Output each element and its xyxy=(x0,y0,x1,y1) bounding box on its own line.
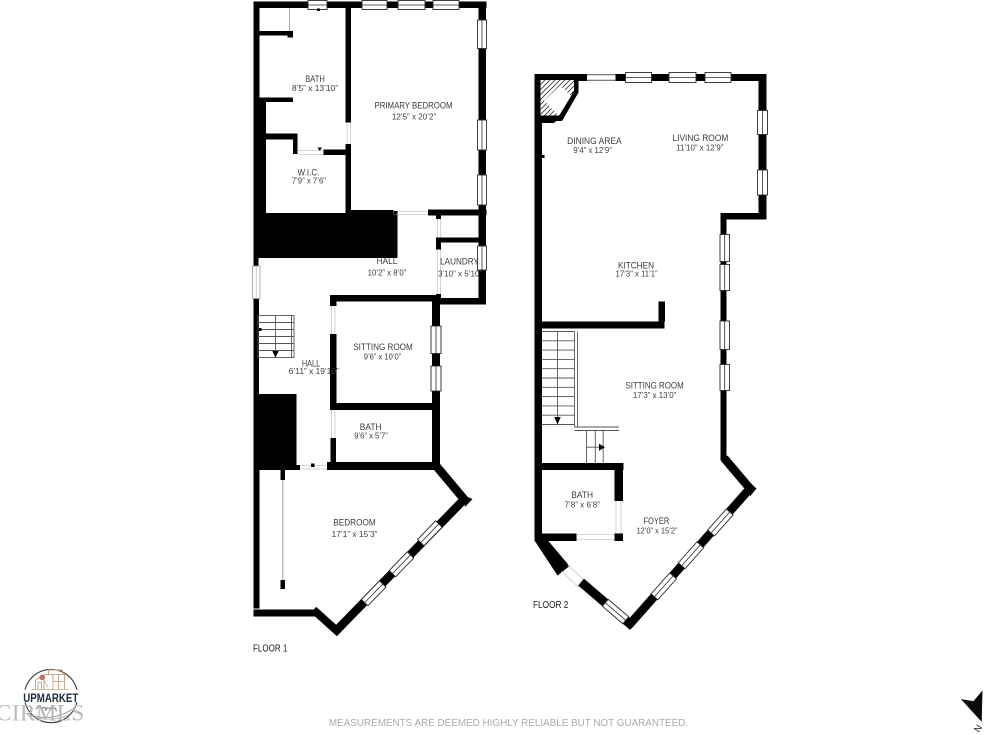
svg-text:PRIMARY BEDROOM: PRIMARY BEDROOM xyxy=(375,101,453,111)
svg-text:N: N xyxy=(972,723,985,735)
svg-text:8’5” x 13’10”: 8’5” x 13’10” xyxy=(292,83,338,93)
svg-text:MEASUREMENTS ARE DEEMED HIGHLY: MEASUREMENTS ARE DEEMED HIGHLY RELIABLE … xyxy=(329,718,688,729)
svg-text:9’6” x 5’7”: 9’6” x 5’7” xyxy=(354,431,388,441)
svg-text:HALL: HALL xyxy=(377,256,398,266)
svg-text:7’9” x 7’6”: 7’9” x 7’6” xyxy=(292,176,326,186)
svg-text:3’10” x 5’10”: 3’10” x 5’10” xyxy=(438,269,482,279)
svg-text:7’8” x 6’8”: 7’8” x 6’8” xyxy=(565,500,601,510)
svg-text:SITTING ROOM: SITTING ROOM xyxy=(625,381,683,391)
svg-text:LAUNDRY: LAUNDRY xyxy=(440,257,479,267)
svg-text:SITTING ROOM: SITTING ROOM xyxy=(353,342,413,352)
svg-text:17’3” x 13’0”: 17’3” x 13’0” xyxy=(633,390,677,400)
svg-text:FLOOR 2: FLOOR 2 xyxy=(533,600,569,611)
svg-text:11’10” x 12’9”: 11’10” x 12’9” xyxy=(676,143,723,153)
svg-text:10’2” x 8’0”: 10’2” x 8’0” xyxy=(368,268,407,278)
svg-text:BATH: BATH xyxy=(571,490,593,500)
svg-text:17’3” x 11’1”: 17’3” x 11’1” xyxy=(616,269,658,279)
svg-text:CIRMLS: CIRMLS xyxy=(0,701,85,726)
svg-text:6’11” x 19’10”: 6’11” x 19’10” xyxy=(289,366,339,376)
svg-text:BEDROOM: BEDROOM xyxy=(333,518,376,528)
svg-text:12’5” x 20’2”: 12’5” x 20’2” xyxy=(392,112,436,122)
svg-text:9’4” x 12’9”: 9’4” x 12’9” xyxy=(573,145,612,155)
svg-text:FLOOR 1: FLOOR 1 xyxy=(253,644,288,655)
svg-text:12’0” x 15’2”: 12’0” x 15’2” xyxy=(637,526,678,536)
svg-text:17’1” x 15’3”: 17’1” x 15’3” xyxy=(332,529,378,539)
svg-text:9’6” x 10’0”: 9’6” x 10’0” xyxy=(364,352,402,362)
svg-text:FOYER: FOYER xyxy=(643,516,669,526)
svg-text:LIVING ROOM: LIVING ROOM xyxy=(673,133,729,143)
